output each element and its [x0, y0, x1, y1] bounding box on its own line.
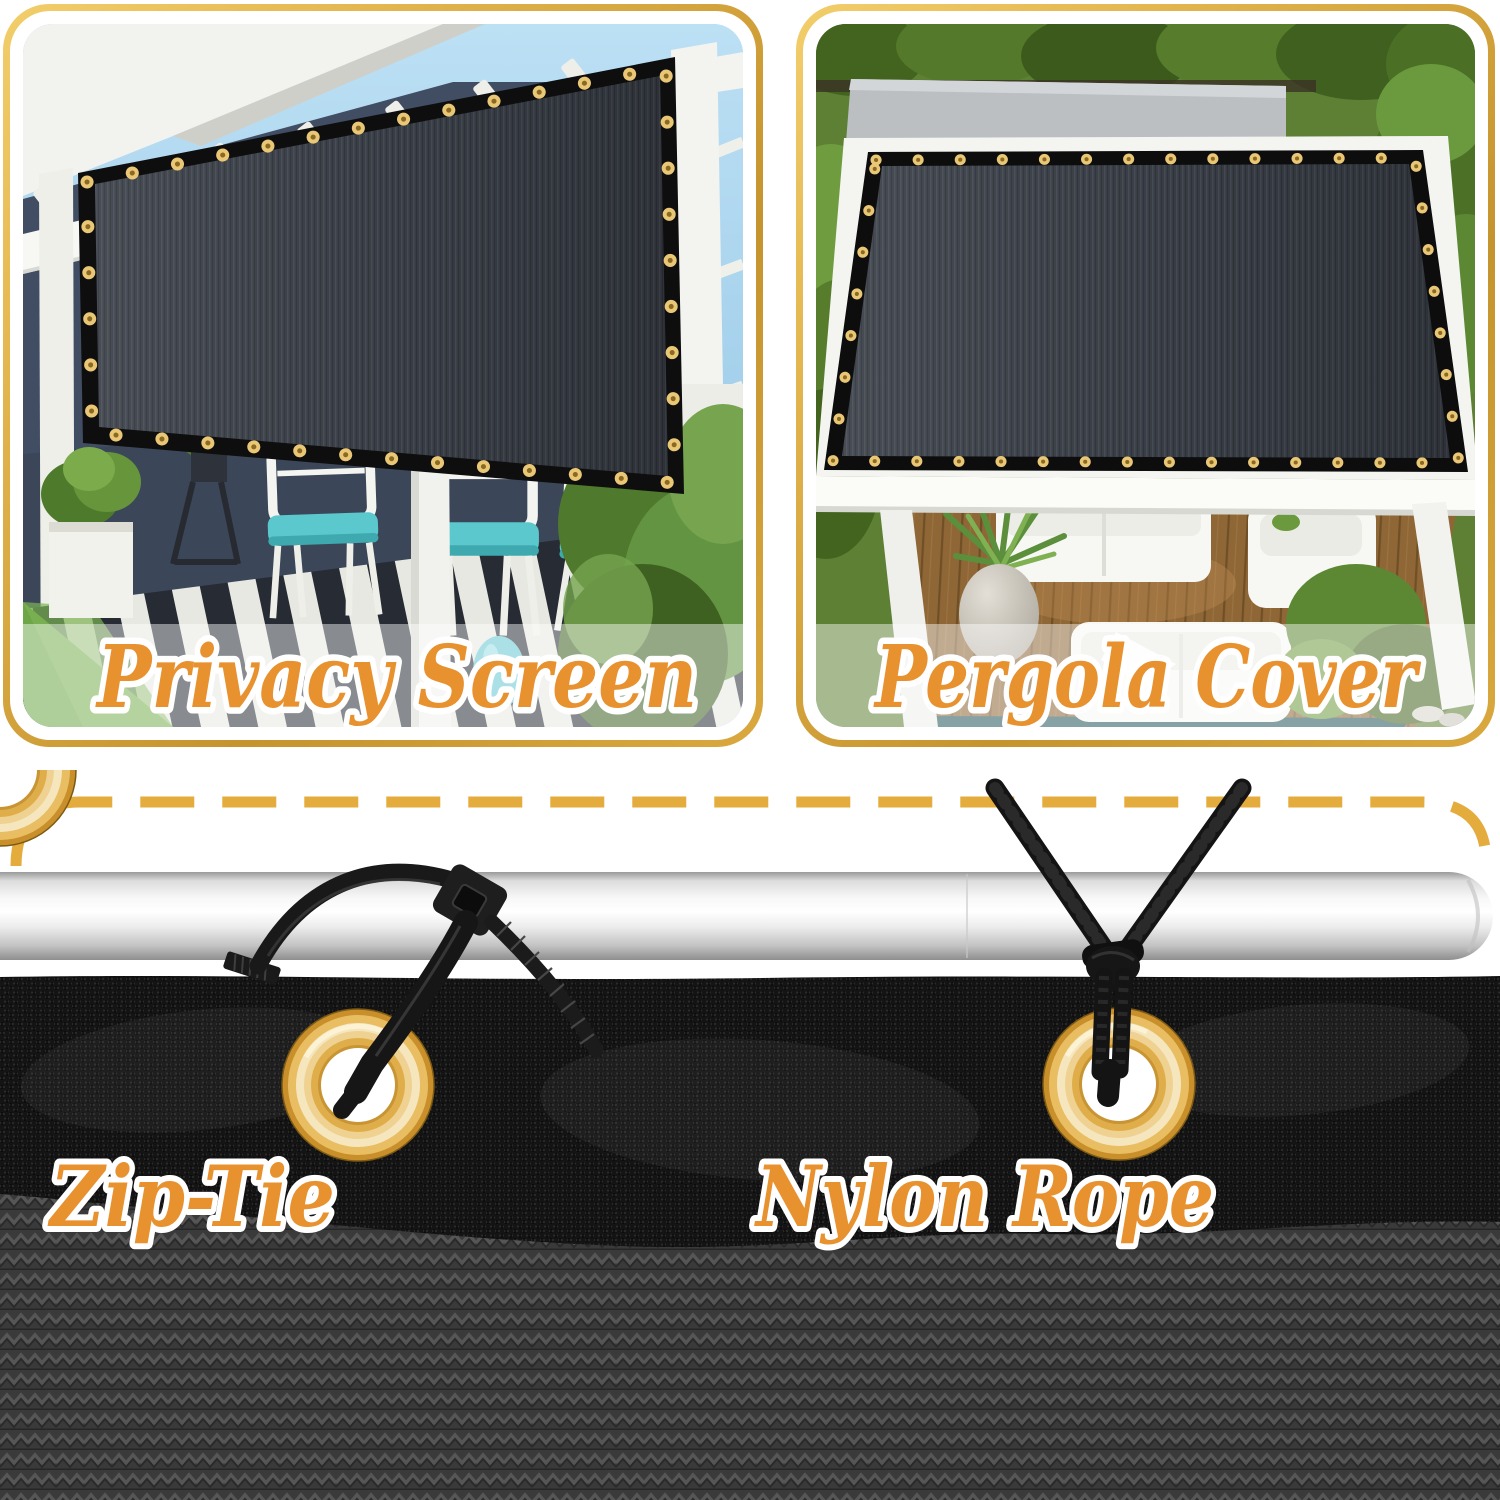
pergola-cover-panel: Pergola Cover: [796, 4, 1495, 747]
pergola-cover-fabric: [824, 150, 1468, 472]
product-image-canvas: Privacy Screen: [0, 0, 1500, 1500]
attachment-demo-scene: Zip-Tie Nylon Rope: [0, 770, 1500, 1500]
privacy-screen-scene: [23, 24, 743, 727]
pergola-cover-photo: Pergola Cover: [816, 24, 1475, 727]
privacy-screen-caption: Privacy Screen: [23, 624, 743, 727]
privacy-screen-label: Privacy Screen: [94, 627, 697, 727]
privacy-screen-photo: Privacy Screen: [23, 24, 743, 727]
attachment-demo-section: Zip-Tie Nylon Rope: [0, 770, 1500, 1500]
privacy-screen-panel-frame: Privacy Screen: [10, 11, 756, 740]
nylon-rope-label: Nylon Rope: [753, 1147, 1214, 1246]
pergola-cover-scene: [816, 24, 1475, 727]
planter-box: [41, 447, 141, 618]
pergola-cover-panel-frame: Pergola Cover: [803, 11, 1488, 740]
pergola-cover-caption: Pergola Cover: [816, 624, 1475, 727]
zip-tie-label: Zip-Tie: [47, 1147, 335, 1246]
privacy-screen-caption-band: Privacy Screen: [23, 624, 743, 727]
pergola-cover-label: Pergola Cover: [873, 627, 1422, 727]
pergola-cover-caption-band: Pergola Cover: [816, 624, 1475, 727]
mounting-pole: [0, 872, 1493, 960]
privacy-screen-panel: Privacy Screen: [3, 4, 763, 747]
